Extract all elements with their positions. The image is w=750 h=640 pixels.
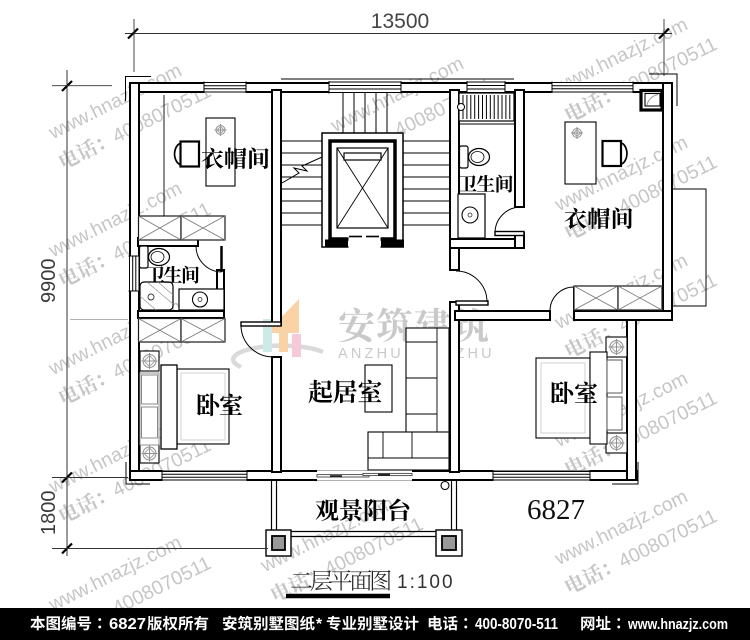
svg-text:1:100: 1:100 (397, 572, 455, 593)
svg-text:1800: 1800 (38, 491, 60, 536)
svg-text:*: * (316, 616, 323, 633)
svg-text:6827: 6827 (527, 494, 585, 526)
svg-text:6827: 6827 (109, 616, 146, 633)
svg-text:400-8070-511: 400-8070-511 (475, 616, 558, 633)
svg-text:www.hnazjz.com: www.hnazjz.com (627, 616, 728, 633)
svg-text:13500: 13500 (371, 10, 429, 33)
svg-text:9900: 9900 (38, 259, 60, 304)
